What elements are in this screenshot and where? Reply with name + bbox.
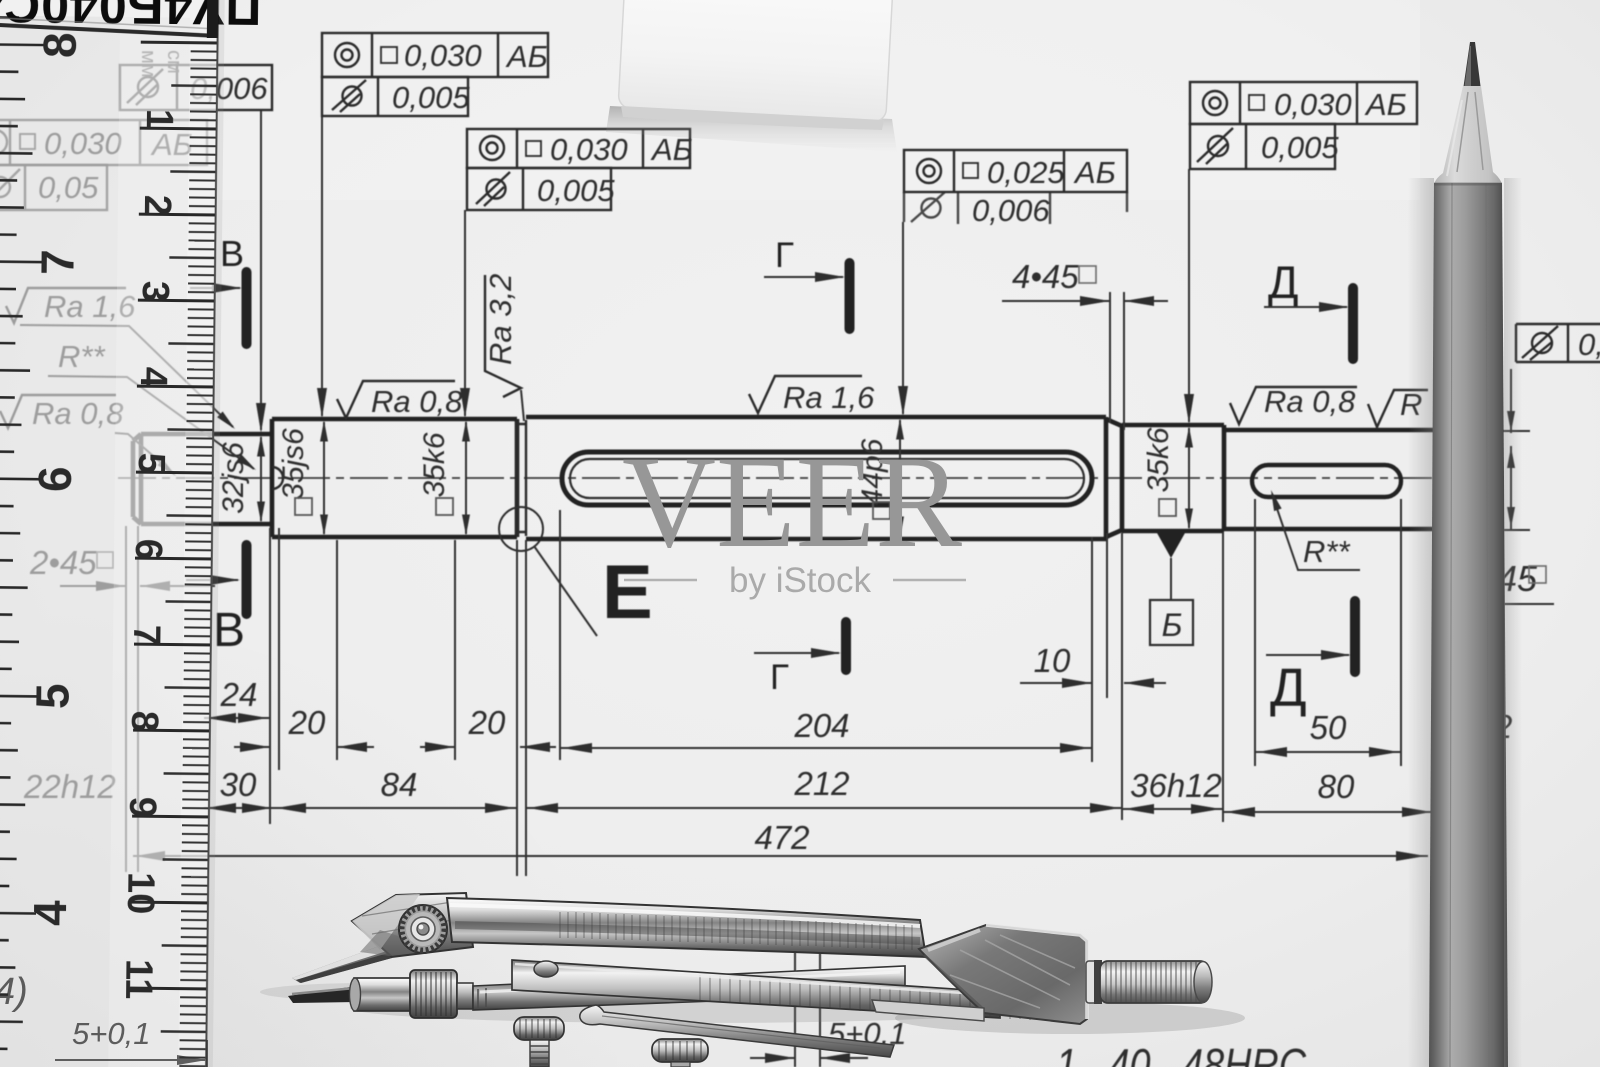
svg-text:0,005: 0,005	[1261, 130, 1339, 165]
svg-text:7: 7	[125, 624, 167, 646]
svg-text:1...40...48HRC: 1...40...48HRC	[1056, 1039, 1307, 1067]
svg-text:20: 20	[468, 704, 506, 741]
svg-text:0,: 0,	[1578, 327, 1600, 362]
svg-text:4): 4)	[0, 971, 28, 1013]
svg-text:4•45: 4•45	[1012, 258, 1079, 295]
svg-text:6: 6	[29, 466, 81, 492]
svg-text:36h12: 36h12	[1130, 767, 1222, 804]
svg-text:0,030: 0,030	[550, 132, 628, 167]
svg-text:35k6: 35k6	[1142, 427, 1175, 492]
svg-text:0,030: 0,030	[404, 38, 482, 73]
svg-text:Г: Г	[770, 658, 789, 697]
svg-text:8: 8	[34, 32, 86, 58]
svg-text:1: 1	[138, 109, 180, 131]
svg-text:Д: Д	[1270, 658, 1307, 718]
svg-text:80: 80	[1318, 768, 1355, 805]
svg-text:R**: R**	[1303, 534, 1350, 569]
svg-text:8: 8	[123, 710, 165, 732]
svg-text:4: 4	[24, 900, 76, 927]
svg-text:5+0,1: 5+0,1	[72, 1016, 150, 1051]
svg-text:2: 2	[136, 195, 178, 217]
svg-text:АБ: АБ	[1364, 87, 1407, 122]
svg-text:32js6: 32js6	[217, 442, 250, 514]
svg-text:7: 7	[31, 249, 83, 275]
svg-text:0,030: 0,030	[1274, 87, 1352, 122]
svg-text:by iStock: by iStock	[729, 561, 871, 600]
svg-text:4: 4	[132, 366, 174, 388]
svg-text:Д: Д	[1268, 257, 1298, 308]
svg-text:20: 20	[288, 704, 326, 741]
svg-text:84: 84	[381, 766, 418, 803]
svg-text:Ra 3,2: Ra 3,2	[483, 274, 518, 365]
svg-text:204: 204	[793, 707, 849, 744]
svg-text:Ra 0,8: Ra 0,8	[371, 384, 463, 419]
svg-text:Ra 0,8: Ra 0,8	[1264, 384, 1356, 419]
svg-text:3: 3	[134, 281, 176, 303]
svg-text:9: 9	[121, 796, 163, 818]
svg-text:24: 24	[220, 676, 258, 713]
svg-text:0,006: 0,006	[972, 193, 1050, 228]
svg-text:11: 11	[117, 959, 159, 1000]
svg-text:5: 5	[130, 452, 172, 474]
svg-text:Ra 1,6: Ra 1,6	[783, 380, 875, 415]
svg-text:В: В	[220, 233, 244, 274]
svg-text:212: 212	[793, 765, 849, 802]
svg-text:5: 5	[26, 683, 78, 709]
svg-text:6: 6	[127, 538, 169, 560]
svg-text:35js6: 35js6	[277, 428, 310, 500]
svg-text:0,005: 0,005	[392, 80, 470, 115]
svg-text:Б: Б	[1162, 607, 1183, 643]
svg-text:10: 10	[1034, 642, 1071, 679]
svg-text:АБ: АБ	[505, 39, 548, 74]
svg-text:35k6: 35k6	[418, 432, 451, 497]
svg-text:50: 50	[1310, 709, 1347, 746]
svg-text:Г: Г	[775, 236, 794, 275]
svg-text:30: 30	[220, 766, 257, 803]
svg-text:472: 472	[754, 819, 809, 856]
svg-text:10: 10	[119, 872, 161, 915]
svg-text:0,005: 0,005	[537, 173, 615, 208]
svg-text:АБ: АБ	[1073, 155, 1116, 190]
svg-text:0,025: 0,025	[987, 155, 1065, 190]
svg-text:VEER: VEER	[622, 428, 962, 575]
